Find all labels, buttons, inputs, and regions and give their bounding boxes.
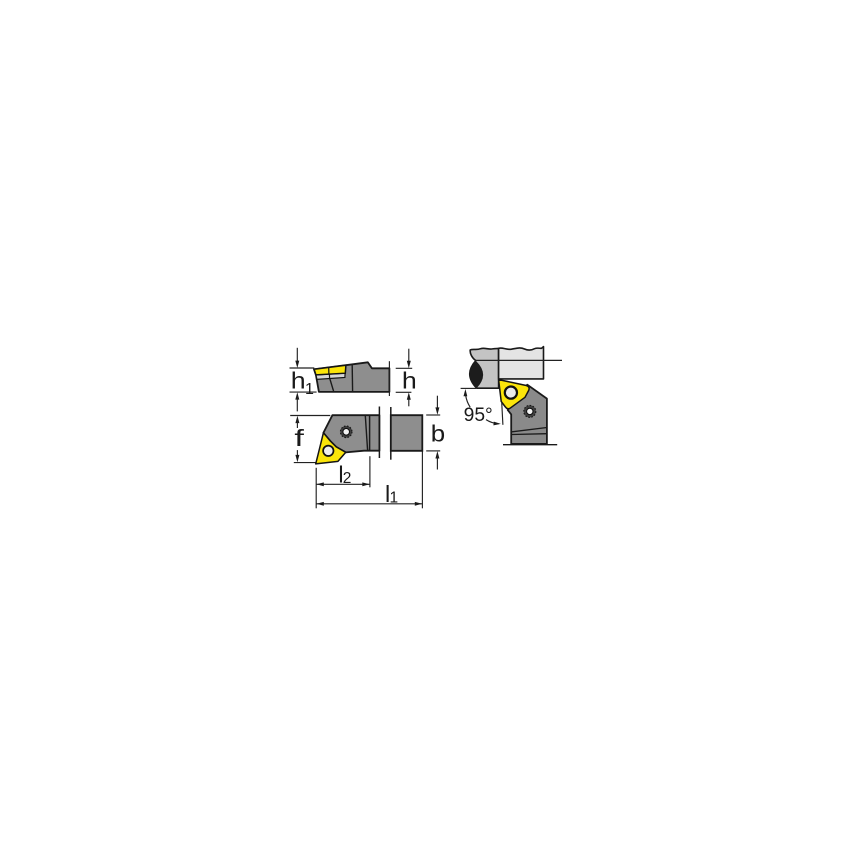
svg-text:b: b bbox=[431, 421, 445, 447]
svg-text:h: h bbox=[402, 368, 417, 394]
svg-text:2: 2 bbox=[343, 470, 352, 487]
svg-text:95°: 95° bbox=[464, 405, 493, 426]
svg-text:1: 1 bbox=[305, 381, 314, 398]
svg-text:1: 1 bbox=[390, 489, 399, 506]
svg-text:f: f bbox=[294, 425, 304, 451]
svg-text:h: h bbox=[291, 367, 306, 393]
